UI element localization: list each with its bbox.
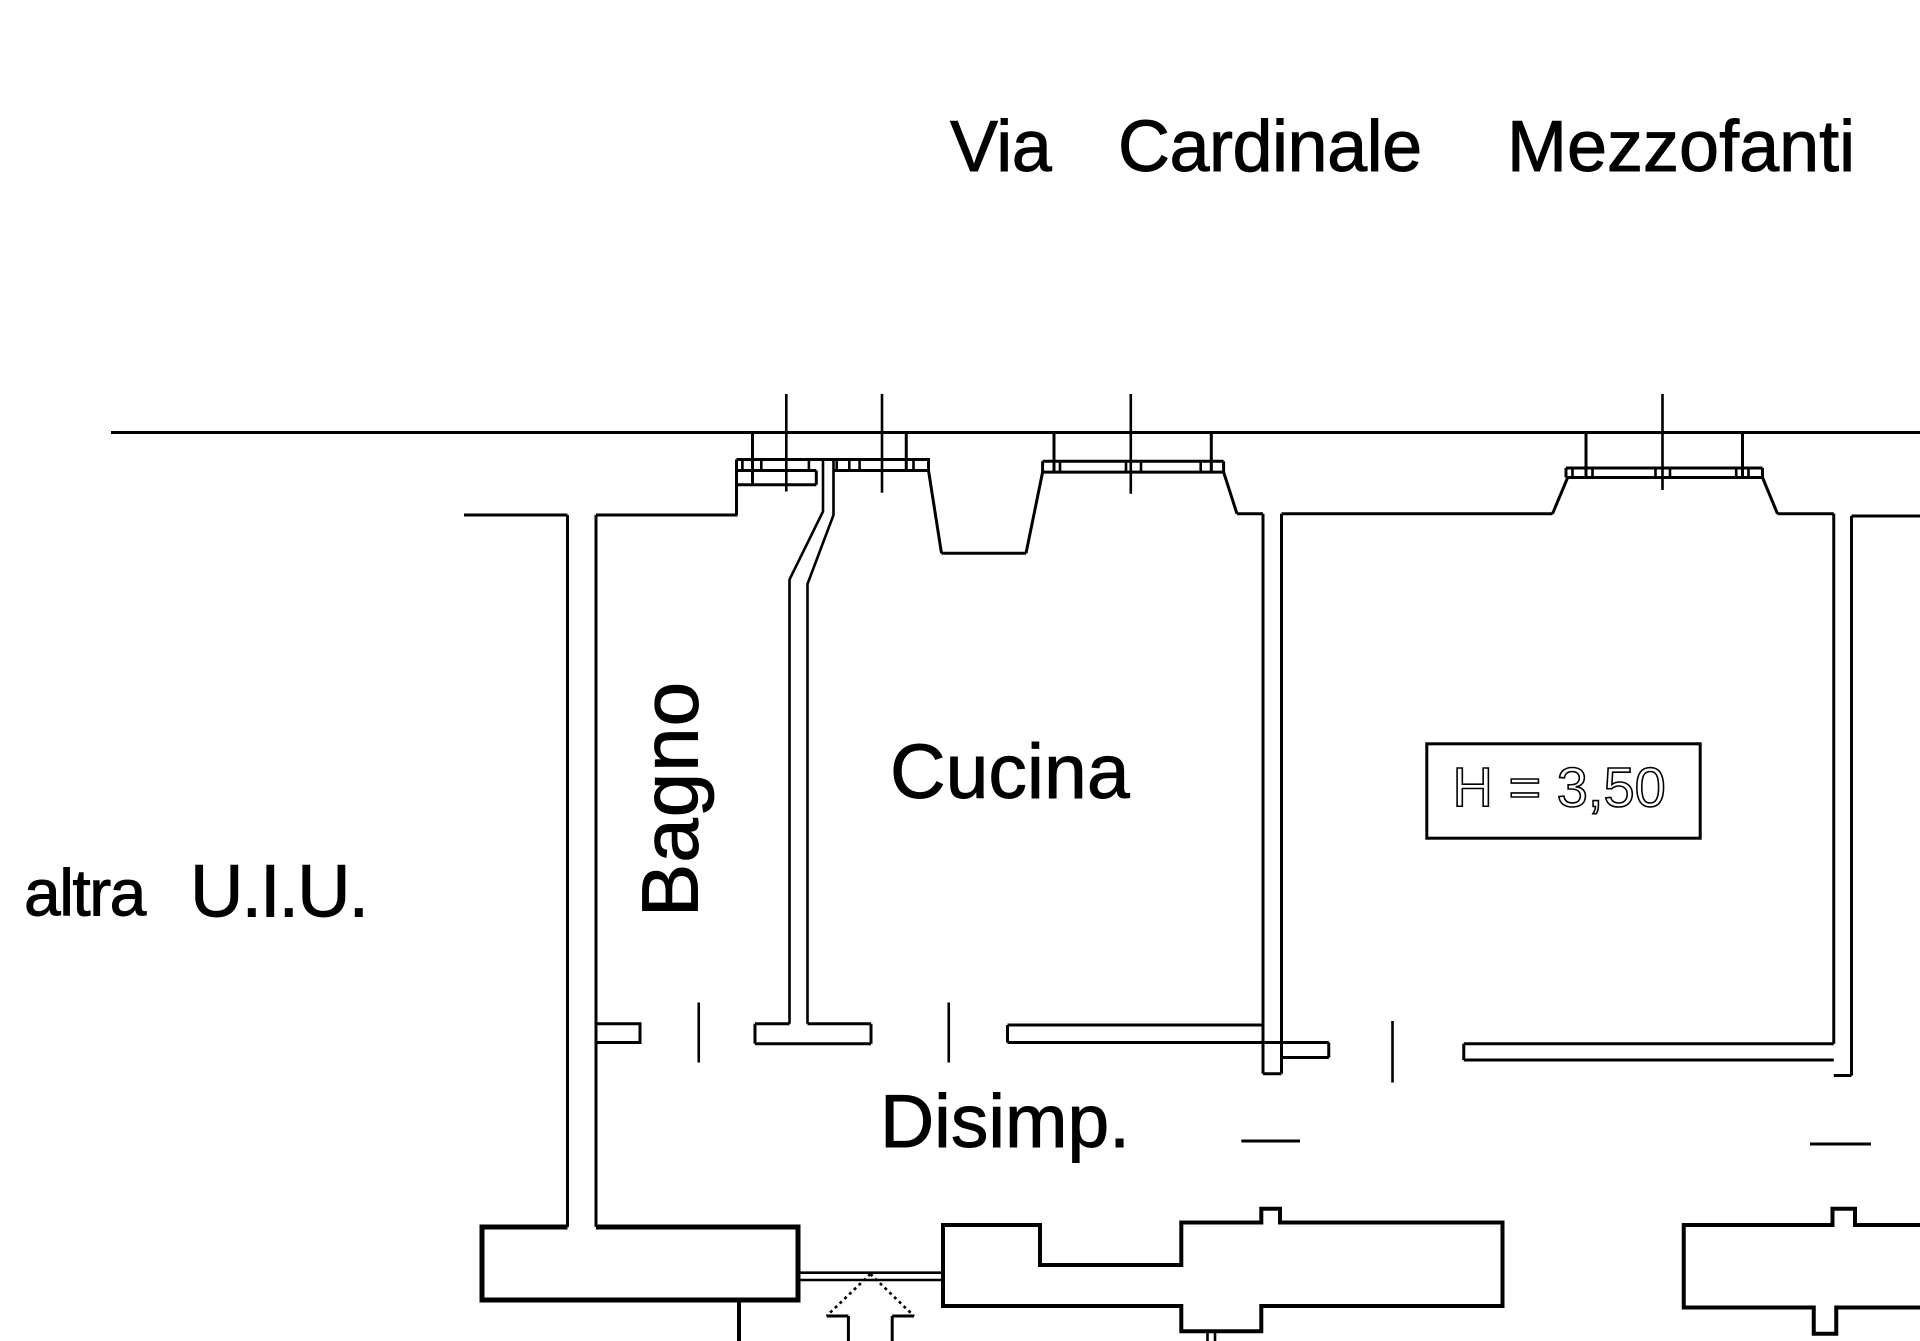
svg-text:Cucina: Cucina xyxy=(890,729,1130,815)
svg-text:altra: altra xyxy=(24,856,147,930)
svg-text:Mezzofanti: Mezzofanti xyxy=(1507,107,1855,187)
svg-text:Bagno: Bagno xyxy=(626,681,715,917)
svg-text:Disimp.: Disimp. xyxy=(880,1079,1130,1163)
svg-text:U.I.U.: U.I.U. xyxy=(190,850,367,933)
svg-text:Cardinale: Cardinale xyxy=(1118,107,1422,187)
svg-text:Via: Via xyxy=(950,107,1053,187)
svg-text:H = 3,50: H = 3,50 xyxy=(1453,756,1666,819)
